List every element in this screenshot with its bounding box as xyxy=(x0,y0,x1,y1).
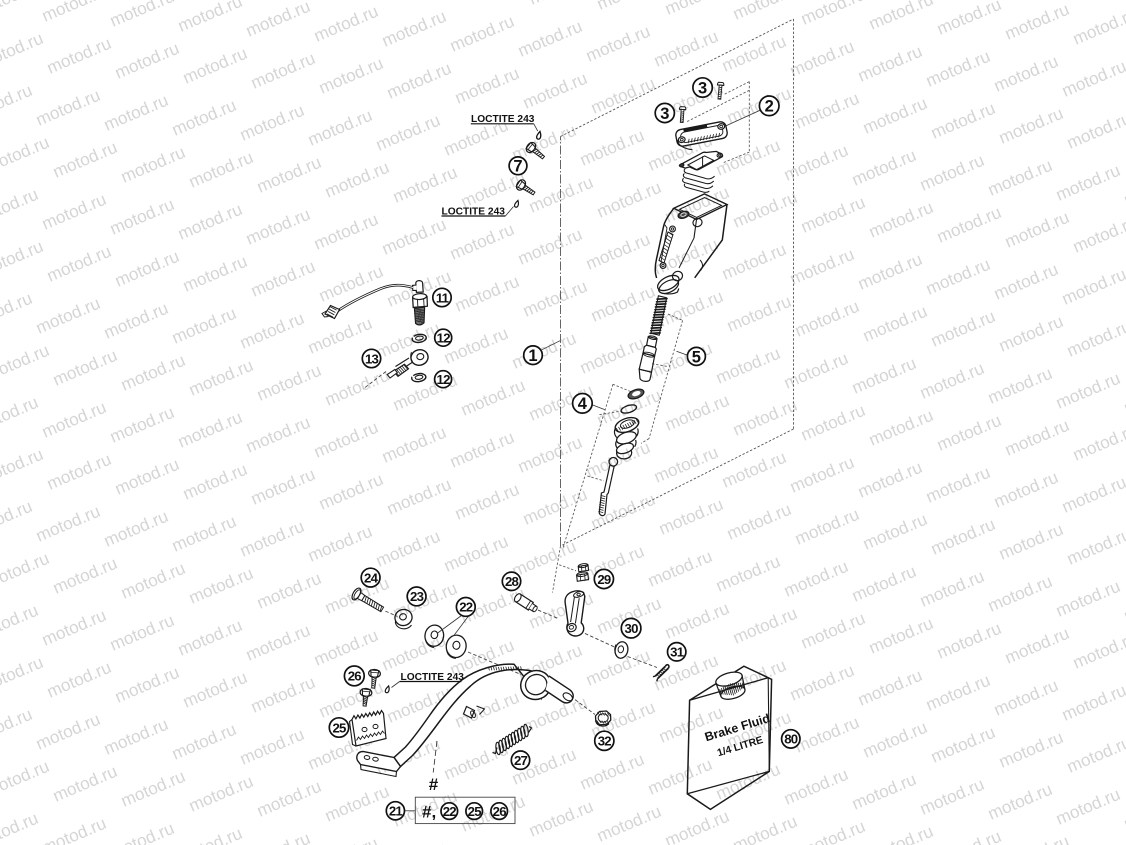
svg-text:motod.ru: motod.ru xyxy=(1121,165,1126,210)
svg-text:motod.ru: motod.ru xyxy=(0,236,46,281)
svg-text:motod.ru: motod.ru xyxy=(996,103,1066,148)
svg-text:motod.ru: motod.ru xyxy=(452,63,522,108)
svg-text:motod.ru: motod.ru xyxy=(316,53,386,98)
svg-text:motod.ru: motod.ru xyxy=(724,499,794,544)
svg-text:motod.ru: motod.ru xyxy=(390,162,460,207)
svg-text:motod.ru: motod.ru xyxy=(991,675,1061,720)
svg-text:motod.ru: motod.ru xyxy=(996,727,1066,772)
svg-text:motod.ru: motod.ru xyxy=(515,224,585,269)
svg-text:motod.ru: motod.ru xyxy=(577,749,647,794)
svg-text:24: 24 xyxy=(364,570,379,585)
svg-text:motod.ru: motod.ru xyxy=(39,605,109,650)
svg-text:motod.ru: motod.ru xyxy=(1053,576,1123,621)
svg-text:motod.ru: motod.ru xyxy=(798,192,868,237)
svg-text:motod.ru: motod.ru xyxy=(169,303,239,348)
svg-text:motod.ru: motod.ru xyxy=(101,506,171,551)
svg-text:motod.ru: motod.ru xyxy=(1121,581,1126,626)
svg-text:motod.ru: motod.ru xyxy=(175,823,245,845)
svg-text:motod.ru: motod.ru xyxy=(447,427,517,472)
svg-text:motod.ru: motod.ru xyxy=(860,717,930,762)
svg-text:motod.ru: motod.ru xyxy=(0,28,46,73)
svg-text:motod.ru: motod.ru xyxy=(316,261,386,306)
svg-text:motod.ru: motod.ru xyxy=(44,33,114,78)
svg-text:motod.ru: motod.ru xyxy=(730,0,800,24)
svg-text:motod.ru: motod.ru xyxy=(787,452,857,497)
svg-text:motod.ru: motod.ru xyxy=(1002,831,1072,845)
svg-text:motod.ru: motod.ru xyxy=(860,301,930,346)
svg-text:motod.ru: motod.ru xyxy=(447,11,517,56)
svg-text:motod.ru: motod.ru xyxy=(1070,420,1126,465)
svg-text:motod.ru: motod.ru xyxy=(866,821,936,845)
svg-text:motod.ru: motod.ru xyxy=(594,0,664,14)
svg-text:motod.ru: motod.ru xyxy=(186,147,256,192)
svg-text:motod.ru: motod.ru xyxy=(798,400,868,445)
svg-text:motod.ru: motod.ru xyxy=(934,826,1004,845)
svg-text:motod.ru: motod.ru xyxy=(50,553,120,598)
svg-text:motod.ru: motod.ru xyxy=(1070,212,1126,257)
svg-text:motod.ru: motod.ru xyxy=(724,291,794,336)
svg-text:motod.ru: motod.ru xyxy=(458,0,528,4)
svg-text:motod.ru: motod.ru xyxy=(441,739,511,784)
svg-text:motod.ru: motod.ru xyxy=(917,774,987,819)
svg-text:motod.ru: motod.ru xyxy=(985,779,1055,824)
svg-text:28: 28 xyxy=(505,574,519,589)
svg-text:motod.ru: motod.ru xyxy=(101,298,171,343)
svg-text:motod.ru: motod.ru xyxy=(866,197,936,242)
svg-text:22: 22 xyxy=(443,804,457,819)
svg-text:motod.ru: motod.ru xyxy=(1002,0,1072,44)
svg-text:motod.ru: motod.ru xyxy=(730,603,800,648)
svg-text:30: 30 xyxy=(625,621,639,636)
svg-text:motod.ru: motod.ru xyxy=(520,68,590,113)
svg-text:motod.ru: motod.ru xyxy=(594,177,664,222)
svg-text:motod.ru: motod.ru xyxy=(1070,628,1126,673)
svg-text:motod.ru: motod.ru xyxy=(934,0,1004,39)
svg-text:motod.ru: motod.ru xyxy=(577,333,647,378)
svg-text:motod.ru: motod.ru xyxy=(373,318,443,363)
svg-text:motod.ru: motod.ru xyxy=(855,41,925,86)
svg-text:motod.ru: motod.ru xyxy=(50,345,120,390)
svg-text:motod.ru: motod.ru xyxy=(0,600,41,645)
svg-text:motod.ru: motod.ru xyxy=(1064,524,1126,569)
svg-text:motod.ru: motod.ru xyxy=(985,155,1055,200)
svg-text:motod.ru: motod.ru xyxy=(526,0,596,9)
svg-text:7: 7 xyxy=(513,158,522,176)
svg-text:motod.ru: motod.ru xyxy=(934,618,1004,663)
svg-text:motod.ru: motod.ru xyxy=(923,254,993,299)
svg-text:motod.ru: motod.ru xyxy=(713,759,783,804)
svg-text:motod.ru: motod.ru xyxy=(1002,207,1072,252)
svg-text:motod.ru: motod.ru xyxy=(515,16,585,61)
svg-text:motod.ru: motod.ru xyxy=(719,239,789,284)
svg-text:motod.ru: motod.ru xyxy=(175,615,245,660)
svg-text:motod.ru: motod.ru xyxy=(594,801,664,845)
svg-text:12: 12 xyxy=(437,372,451,387)
svg-text:motod.ru: motod.ru xyxy=(311,1,381,46)
svg-text:motod.ru: motod.ru xyxy=(0,808,41,845)
svg-text:motod.ru: motod.ru xyxy=(243,412,313,457)
svg-text:motod.ru: motod.ru xyxy=(101,714,171,759)
svg-text:motod.ru: motod.ru xyxy=(175,0,245,36)
svg-text:motod.ru: motod.ru xyxy=(928,514,998,559)
svg-text:motod.ru: motod.ru xyxy=(33,293,103,338)
svg-text:motod.ru: motod.ru xyxy=(0,80,35,125)
svg-text:motod.ru: motod.ru xyxy=(305,521,375,566)
svg-text:31: 31 xyxy=(670,645,684,660)
svg-text:12: 12 xyxy=(437,330,451,345)
svg-text:motod.ru: motod.ru xyxy=(0,0,41,21)
svg-text:13: 13 xyxy=(365,351,379,366)
svg-text:25: 25 xyxy=(468,804,482,819)
svg-text:motod.ru: motod.ru xyxy=(186,563,256,608)
svg-text:2: 2 xyxy=(765,98,774,116)
svg-text:5: 5 xyxy=(692,348,701,366)
svg-text:motod.ru: motod.ru xyxy=(107,610,177,655)
svg-text:motod.ru: motod.ru xyxy=(713,551,783,596)
svg-text:motod.ru: motod.ru xyxy=(1121,789,1126,834)
svg-text:motod.ru: motod.ru xyxy=(509,328,579,373)
svg-text:motod.ru: motod.ru xyxy=(107,818,177,845)
svg-text:motod.ru: motod.ru xyxy=(651,442,721,487)
svg-text:motod.ru: motod.ru xyxy=(928,306,998,351)
svg-text:motod.ru: motod.ru xyxy=(180,667,250,712)
svg-text:motod.ru: motod.ru xyxy=(44,657,114,702)
svg-text:motod.ru: motod.ru xyxy=(866,613,936,658)
svg-text:motod.ru: motod.ru xyxy=(112,454,182,499)
svg-text:motod.ru: motod.ru xyxy=(792,88,862,133)
svg-text:motod.ru: motod.ru xyxy=(928,722,998,767)
svg-text:25: 25 xyxy=(332,720,346,735)
svg-text:motod.ru: motod.ru xyxy=(243,620,313,665)
svg-text:motod.ru: motod.ru xyxy=(526,796,596,841)
svg-text:motod.ru: motod.ru xyxy=(186,771,256,816)
svg-text:motod.ru: motod.ru xyxy=(855,457,925,502)
svg-text:motod.ru: motod.ru xyxy=(934,410,1004,455)
svg-text:3: 3 xyxy=(698,79,707,97)
svg-text:motod.ru: motod.ru xyxy=(180,459,250,504)
svg-text:motod.ru: motod.ru xyxy=(719,31,789,76)
svg-text:motod.ru: motod.ru xyxy=(928,98,998,143)
svg-text:32: 32 xyxy=(598,734,612,749)
svg-text:motod.ru: motod.ru xyxy=(373,526,443,571)
svg-text:motod.ru: motod.ru xyxy=(44,241,114,286)
svg-text:23: 23 xyxy=(410,589,424,604)
svg-text:motod.ru: motod.ru xyxy=(798,0,868,29)
svg-text:motod.ru: motod.ru xyxy=(39,813,109,845)
svg-text:motod.ru: motod.ru xyxy=(322,365,392,410)
svg-text:LOCTITE 243: LOCTITE 243 xyxy=(471,114,535,125)
svg-text:motod.ru: motod.ru xyxy=(588,281,658,326)
svg-text:motod.ru: motod.ru xyxy=(996,519,1066,564)
svg-text:motod.ru: motod.ru xyxy=(645,754,715,799)
svg-text:motod.ru: motod.ru xyxy=(730,811,800,845)
svg-text:motod.ru: motod.ru xyxy=(520,484,590,529)
svg-text:motod.ru: motod.ru xyxy=(0,496,35,541)
svg-text:motod.ru: motod.ru xyxy=(662,390,732,435)
svg-text:29: 29 xyxy=(597,572,611,587)
svg-text:motod.ru: motod.ru xyxy=(798,608,868,653)
svg-text:motod.ru: motod.ru xyxy=(730,395,800,440)
svg-text:motod.ru: motod.ru xyxy=(0,444,46,489)
svg-text:motod.ru: motod.ru xyxy=(860,509,930,554)
svg-text:motod.ru: motod.ru xyxy=(1059,472,1126,517)
svg-text:motod.ru: motod.ru xyxy=(1002,623,1072,668)
svg-text:motod.ru: motod.ru xyxy=(441,323,511,368)
svg-text:motod.ru: motod.ru xyxy=(792,712,862,757)
svg-text:motod.ru: motod.ru xyxy=(101,90,171,135)
svg-text:motod.ru: motod.ru xyxy=(991,51,1061,96)
svg-text:motod.ru: motod.ru xyxy=(509,536,579,581)
svg-text:motod.ru: motod.ru xyxy=(44,449,114,494)
svg-text:motod.ru: motod.ru xyxy=(186,355,256,400)
svg-text:motod.ru: motod.ru xyxy=(577,125,647,170)
svg-text:motod.ru: motod.ru xyxy=(379,838,449,845)
svg-text:motod.ru: motod.ru xyxy=(515,432,585,477)
svg-text:motod.ru: motod.ru xyxy=(985,571,1055,616)
svg-text:motod.ru: motod.ru xyxy=(0,652,46,697)
svg-text:motod.ru: motod.ru xyxy=(384,474,454,519)
svg-text:motod.ru: motod.ru xyxy=(180,251,250,296)
svg-text:motod.ru: motod.ru xyxy=(118,350,188,395)
svg-text:motod.ru: motod.ru xyxy=(33,709,103,754)
svg-text:motod.ru: motod.ru xyxy=(237,724,307,769)
svg-text:motod.ru: motod.ru xyxy=(39,397,109,442)
svg-text:motod.ru: motod.ru xyxy=(923,670,993,715)
svg-text:motod.ru: motod.ru xyxy=(849,145,919,190)
svg-text:motod.ru: motod.ru xyxy=(447,219,517,264)
svg-text:motod.ru: motod.ru xyxy=(169,95,239,140)
svg-text:motod.ru: motod.ru xyxy=(781,348,851,393)
svg-text:motod.ru: motod.ru xyxy=(923,462,993,507)
svg-text:80: 80 xyxy=(784,732,798,747)
svg-text:motod.ru: motod.ru xyxy=(588,73,658,118)
svg-text:26: 26 xyxy=(348,669,362,684)
svg-text:motod.ru: motod.ru xyxy=(180,43,250,88)
svg-text:motod.ru: motod.ru xyxy=(651,26,721,71)
svg-text:motod.ru: motod.ru xyxy=(656,286,726,331)
svg-text:#,: #, xyxy=(422,803,436,822)
svg-text:motod.ru: motod.ru xyxy=(39,0,109,26)
svg-text:motod.ru: motod.ru xyxy=(1059,56,1126,101)
svg-text:motod.ru: motod.ru xyxy=(107,402,177,447)
svg-text:motod.ru: motod.ru xyxy=(243,204,313,249)
svg-text:motod.ru: motod.ru xyxy=(849,769,919,814)
svg-text:motod.ru: motod.ru xyxy=(248,48,318,93)
svg-text:motod.ru: motod.ru xyxy=(112,246,182,291)
svg-text:motod.ru: motod.ru xyxy=(798,816,868,845)
svg-text:motod.ru: motod.ru xyxy=(248,672,318,717)
svg-text:motod.ru: motod.ru xyxy=(866,0,936,34)
svg-text:motod.ru: motod.ru xyxy=(917,566,987,611)
svg-text:21: 21 xyxy=(389,804,403,819)
svg-text:motod.ru: motod.ru xyxy=(787,660,857,705)
svg-text:motod.ru: motod.ru xyxy=(169,511,239,556)
svg-text:motod.ru: motod.ru xyxy=(787,244,857,289)
svg-text:motod.ru: motod.ru xyxy=(254,360,324,405)
svg-text:motod.ru: motod.ru xyxy=(866,405,936,450)
svg-text:motod.ru: motod.ru xyxy=(662,598,732,643)
svg-text:motod.ru: motod.ru xyxy=(713,343,783,388)
svg-text:motod.ru: motod.ru xyxy=(50,137,120,182)
svg-text:motod.ru: motod.ru xyxy=(662,0,732,19)
svg-text:motod.ru: motod.ru xyxy=(107,0,177,31)
svg-text:motod.ru: motod.ru xyxy=(792,504,862,549)
svg-text:motod.ru: motod.ru xyxy=(322,157,392,202)
svg-text:motod.ru: motod.ru xyxy=(316,469,386,514)
svg-text:motod.ru: motod.ru xyxy=(645,546,715,591)
svg-text:motod.ru: motod.ru xyxy=(1121,373,1126,418)
svg-text:motod.ru: motod.ru xyxy=(934,202,1004,247)
svg-text:motod.ru: motod.ru xyxy=(118,766,188,811)
svg-text:11: 11 xyxy=(436,290,449,305)
svg-text:motod.ru: motod.ru xyxy=(243,828,313,845)
svg-text:motod.ru: motod.ru xyxy=(0,548,52,593)
svg-text:motod.ru: motod.ru xyxy=(656,494,726,539)
svg-text:motod.ru: motod.ru xyxy=(917,358,987,403)
svg-text:motod.ru: motod.ru xyxy=(0,288,35,333)
svg-text:motod.ru: motod.ru xyxy=(917,150,987,195)
svg-text:motod.ru: motod.ru xyxy=(441,531,511,576)
svg-text:27: 27 xyxy=(514,753,528,768)
svg-text:motod.ru: motod.ru xyxy=(237,308,307,353)
svg-text:motod.ru: motod.ru xyxy=(1070,836,1126,845)
svg-text:motod.ru: motod.ru xyxy=(379,6,449,51)
svg-text:motod.ru: motod.ru xyxy=(583,21,653,66)
svg-text:3: 3 xyxy=(660,105,669,123)
svg-text:motod.ru: motod.ru xyxy=(379,214,449,259)
svg-text:motod.ru: motod.ru xyxy=(849,561,919,606)
svg-text:motod.ru: motod.ru xyxy=(254,776,324,821)
svg-text:motod.ru: motod.ru xyxy=(781,556,851,601)
svg-text:motod.ru: motod.ru xyxy=(33,501,103,546)
svg-text:motod.ru: motod.ru xyxy=(730,187,800,232)
svg-text:motod.ru: motod.ru xyxy=(0,392,41,437)
svg-text:motod.ru: motod.ru xyxy=(0,756,52,801)
svg-text:motod.ru: motod.ru xyxy=(0,184,41,229)
svg-text:motod.ru: motod.ru xyxy=(860,93,930,138)
svg-text:motod.ru: motod.ru xyxy=(1059,264,1126,309)
svg-text:motod.ru: motod.ru xyxy=(849,353,919,398)
svg-text:motod.ru: motod.ru xyxy=(1002,415,1072,460)
svg-text:motod.ru: motod.ru xyxy=(0,132,52,177)
svg-text:motod.ru: motod.ru xyxy=(583,229,653,274)
svg-text:motod.ru: motod.ru xyxy=(781,140,851,185)
svg-text:motod.ru: motod.ru xyxy=(520,276,590,321)
svg-text:motod.ru: motod.ru xyxy=(855,249,925,294)
svg-text:motod.ru: motod.ru xyxy=(452,271,522,316)
svg-text:motod.ru: motod.ru xyxy=(1064,732,1126,777)
svg-text:motod.ru: motod.ru xyxy=(248,464,318,509)
svg-text:motod.ru: motod.ru xyxy=(322,781,392,826)
svg-text:motod.ru: motod.ru xyxy=(583,437,653,482)
svg-text:motod.ru: motod.ru xyxy=(305,105,375,150)
svg-text:motod.ru: motod.ru xyxy=(169,719,239,764)
svg-text:motod.ru: motod.ru xyxy=(311,209,381,254)
svg-text:motod.ru: motod.ru xyxy=(118,558,188,603)
svg-text:motod.ru: motod.ru xyxy=(923,46,993,91)
svg-text:motod.ru: motod.ru xyxy=(50,761,120,806)
svg-text:motod.ru: motod.ru xyxy=(33,85,103,130)
svg-text:motod.ru: motod.ru xyxy=(254,568,324,613)
svg-text:#: # xyxy=(429,775,439,794)
svg-text:motod.ru: motod.ru xyxy=(458,375,528,420)
svg-text:motod.ru: motod.ru xyxy=(452,479,522,524)
svg-text:motod.ru: motod.ru xyxy=(243,0,313,41)
svg-text:motod.ru: motod.ru xyxy=(1053,784,1123,829)
svg-text:26: 26 xyxy=(493,804,507,819)
svg-text:motod.ru: motod.ru xyxy=(118,142,188,187)
svg-text:motod.ru: motod.ru xyxy=(855,665,925,710)
svg-text:motod.ru: motod.ru xyxy=(175,407,245,452)
svg-text:motod.ru: motod.ru xyxy=(1064,108,1126,153)
svg-text:1: 1 xyxy=(528,347,537,365)
svg-text:motod.ru: motod.ru xyxy=(379,630,449,675)
svg-text:motod.ru: motod.ru xyxy=(713,135,783,180)
svg-text:motod.ru: motod.ru xyxy=(254,152,324,197)
svg-text:motod.ru: motod.ru xyxy=(996,311,1066,356)
svg-text:motod.ru: motod.ru xyxy=(248,256,318,301)
svg-text:motod.ru: motod.ru xyxy=(991,259,1061,304)
svg-text:motod.ru: motod.ru xyxy=(781,764,851,809)
svg-text:motod.ru: motod.ru xyxy=(39,189,109,234)
svg-text:motod.ru: motod.ru xyxy=(1059,680,1126,725)
svg-text:motod.ru: motod.ru xyxy=(311,417,381,462)
svg-text:motod.ru: motod.ru xyxy=(792,296,862,341)
svg-text:motod.ru: motod.ru xyxy=(1053,160,1123,205)
svg-text:motod.ru: motod.ru xyxy=(1070,4,1126,49)
svg-text:motod.ru: motod.ru xyxy=(237,100,307,145)
svg-text:motod.ru: motod.ru xyxy=(107,194,177,239)
svg-text:motod.ru: motod.ru xyxy=(1064,316,1126,361)
svg-text:motod.ru: motod.ru xyxy=(373,110,443,155)
svg-text:motod.ru: motod.ru xyxy=(0,704,35,749)
svg-text:motod.ru: motod.ru xyxy=(985,363,1055,408)
svg-text:motod.ru: motod.ru xyxy=(991,467,1061,512)
svg-text:motod.ru: motod.ru xyxy=(237,516,307,561)
svg-text:motod.ru: motod.ru xyxy=(1053,368,1123,413)
svg-text:motod.ru: motod.ru xyxy=(112,662,182,707)
svg-text:motod.ru: motod.ru xyxy=(379,422,449,467)
svg-text:motod.ru: motod.ru xyxy=(311,625,381,670)
svg-text:4: 4 xyxy=(578,395,588,413)
svg-text:motod.ru: motod.ru xyxy=(787,36,857,81)
svg-text:motod.ru: motod.ru xyxy=(0,340,52,385)
svg-text:motod.ru: motod.ru xyxy=(662,806,732,845)
svg-text:motod.ru: motod.ru xyxy=(384,58,454,103)
svg-text:motod.ru: motod.ru xyxy=(719,447,789,492)
svg-text:22: 22 xyxy=(459,600,473,615)
svg-text:motod.ru: motod.ru xyxy=(112,38,182,83)
svg-text:motod.ru: motod.ru xyxy=(175,199,245,244)
svg-text:motod.ru: motod.ru xyxy=(311,833,381,845)
